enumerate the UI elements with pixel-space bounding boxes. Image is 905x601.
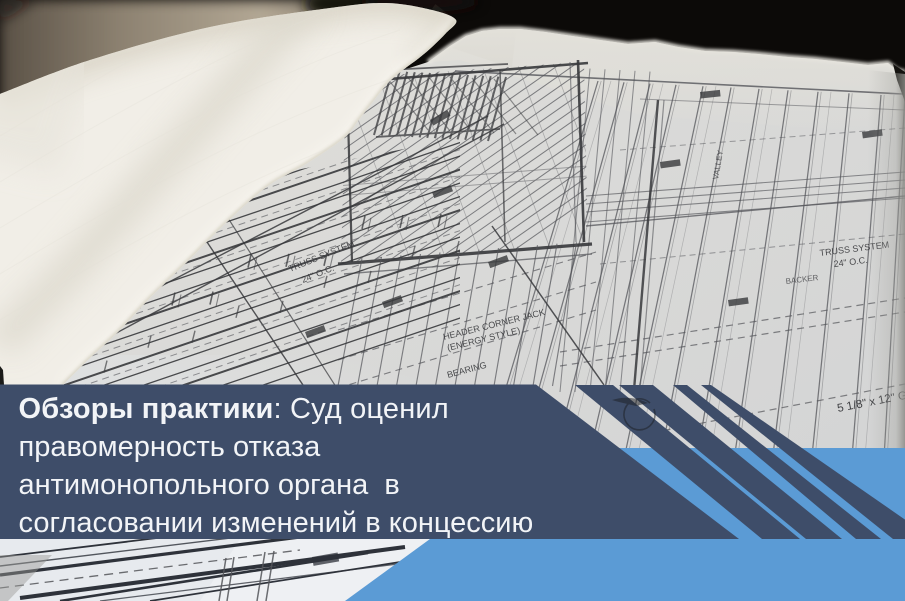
- svg-text:правомерность отказа: правомерность отказа: [19, 431, 322, 463]
- svg-text:антимонопольного органа в: антимонопольного органа в: [19, 469, 400, 501]
- svg-text:согласовании изменений в конце: согласовании изменений в концессию: [19, 507, 534, 539]
- svg-text:Обзоры практики: Суд оценил: Обзоры практики: Суд оценил: [19, 393, 449, 425]
